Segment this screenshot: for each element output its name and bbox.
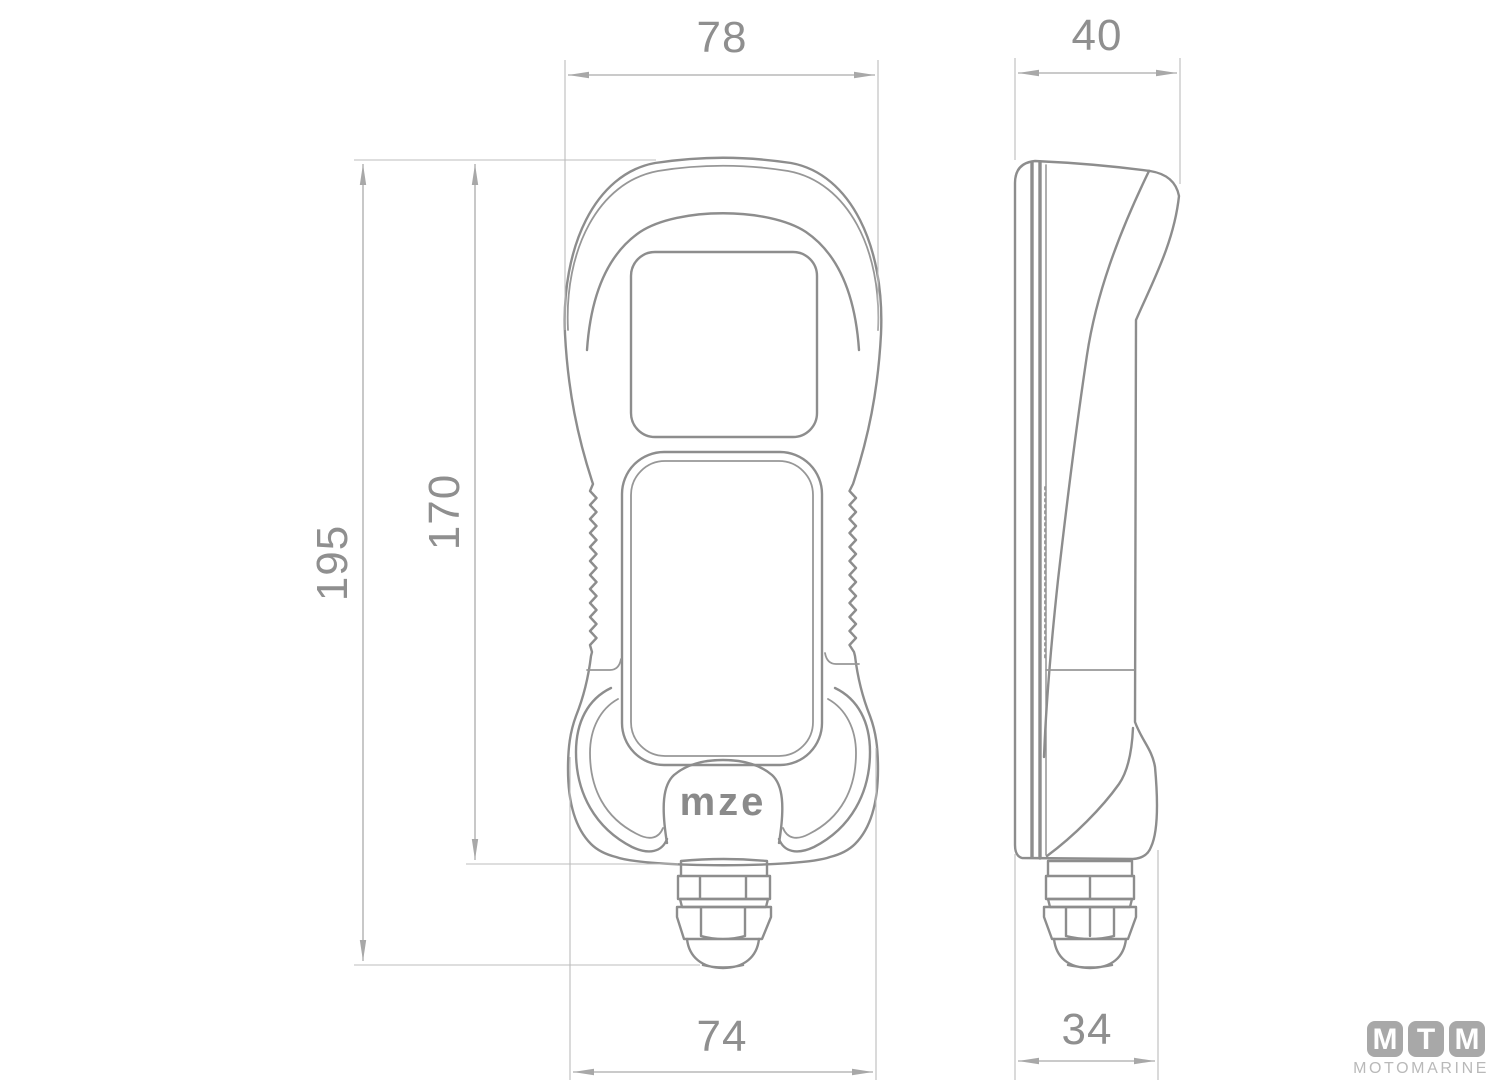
gland-front-collar	[681, 859, 767, 876]
dimension-label: 170	[420, 474, 469, 550]
dimension-label: 78	[697, 13, 748, 62]
front-view: mze	[565, 158, 882, 968]
bracket-horn-left-inner	[590, 699, 663, 838]
dimension-side-bottom-depth: 34	[1015, 850, 1158, 1080]
dimension-overall-height: 195	[308, 160, 700, 965]
display-window-large-outer	[622, 452, 822, 765]
bracket-horn-right-inner	[783, 699, 856, 838]
cable-gland-side	[1044, 861, 1136, 968]
gland-front-hex-main	[677, 907, 771, 939]
dimension-front-top-width: 78	[565, 13, 878, 330]
display-window-large-inner	[631, 461, 813, 756]
watermark-name: MOTOMARINE	[1353, 1060, 1489, 1077]
gland-side-hex-top	[1046, 876, 1134, 899]
front-top-inner-line	[568, 166, 879, 330]
dimension-label: 195	[308, 525, 357, 601]
watermark-logo: M T M MOTOMARINE	[1353, 1021, 1489, 1077]
gland-front-hex-top	[678, 876, 770, 899]
side-bracket-curve	[1047, 728, 1133, 856]
device-logo-text: mze	[680, 780, 767, 824]
dimension-label: 74	[697, 1012, 748, 1061]
gland-side-hex-main	[1044, 907, 1136, 939]
watermark-letter: M	[1373, 1023, 1398, 1056]
watermark-letter: T	[1417, 1023, 1435, 1056]
dimension-side-top-depth: 40	[1015, 11, 1180, 184]
bracket-horn-right	[779, 688, 870, 851]
gland-side-dome	[1054, 939, 1126, 968]
technical-drawing-canvas: mze	[0, 0, 1500, 1080]
cable-gland-front	[677, 859, 771, 968]
dimension-label: 34	[1062, 1005, 1113, 1054]
front-hood-curve	[587, 213, 859, 350]
grip-ledge-left	[587, 659, 621, 670]
gland-side-collar	[1048, 861, 1132, 876]
dimension-label: 40	[1072, 11, 1123, 60]
dimension-body-height: 170	[420, 164, 678, 864]
watermark-letter: M	[1455, 1023, 1480, 1056]
display-window-small	[631, 252, 817, 437]
side-view	[1015, 161, 1179, 968]
technical-drawing-page: mze	[0, 0, 1500, 1080]
gland-front-dome	[687, 939, 759, 968]
